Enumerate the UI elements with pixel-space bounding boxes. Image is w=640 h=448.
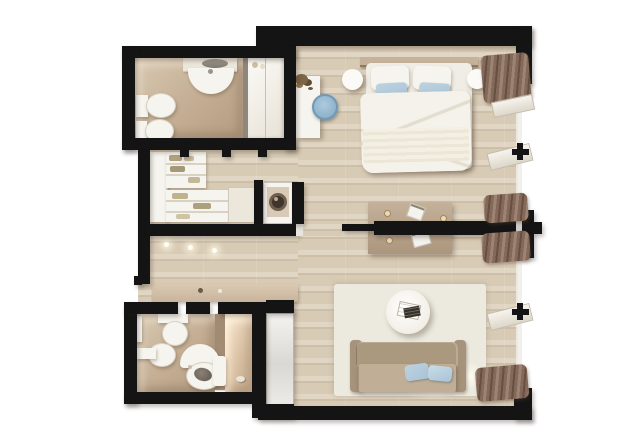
tea-light-3: [386, 237, 393, 244]
shelf-line: [166, 200, 228, 202]
folded-clothes-1: [172, 193, 188, 199]
bathroom1-shelf-item-2: [260, 64, 265, 69]
curtain-bunch-mid-upper: [483, 192, 529, 223]
washer-niche-left-wall: [254, 180, 263, 224]
desk-plant: [295, 74, 308, 85]
shelf-line: [166, 211, 228, 213]
wall-bottom-bathroom1: [122, 138, 296, 150]
folded-clothes-3: [176, 214, 190, 219]
wall-right-bathroom2: [252, 302, 266, 418]
wall-top-bathroom2-b: [186, 302, 210, 314]
entry-gap-floor: [138, 284, 150, 302]
partition-wall-thin-rail: [342, 224, 376, 231]
closet-wall-end-cap: [296, 224, 303, 236]
wall-left-bathroom2: [124, 302, 137, 404]
door-stub-2: [222, 150, 231, 157]
desk-chair-blue: [312, 94, 338, 120]
wall-top-bathroom1: [122, 46, 296, 58]
curtain-bunch-mid-lower: [481, 230, 531, 263]
glass-door-cap-top: [266, 300, 294, 313]
bathroom1-wardrobe-door-split: [265, 58, 266, 138]
bathroom1-toilet-bowl: [146, 93, 176, 118]
door-stub-1: [180, 150, 189, 157]
wall-bottom-closet: [146, 224, 298, 236]
hanging-clothes-3: [170, 166, 185, 172]
floor-plan-stage: [0, 0, 640, 448]
wall-top-main: [256, 26, 532, 46]
doorway-floor-strip: [303, 224, 342, 236]
bathroom2-towel-shelf: [136, 348, 156, 359]
tea-light-1: [384, 210, 391, 217]
ceiling-spotlight-2: [188, 245, 193, 250]
washer-door: [269, 193, 287, 211]
shelf-line: [166, 163, 206, 165]
washer-niche-right-wall: [292, 182, 304, 224]
window-mullion-cross-upper-v: [517, 143, 523, 160]
sofa-back-cushions: [356, 342, 458, 366]
wall-bottom-living: [258, 406, 532, 420]
bathroom2-bottle: [188, 365, 192, 369]
bathroom2-toilet-bowl: [162, 321, 188, 346]
bed-blanket-band: [363, 127, 470, 164]
console-item-dark: [198, 288, 203, 293]
sofa-pillow-blue-2: [427, 365, 452, 382]
curtain-bunch-bottom: [475, 364, 530, 402]
hanging-clothes-4: [188, 177, 200, 183]
door-stub-3: [258, 150, 267, 157]
bathroom2-sliding-glass-door: [266, 313, 294, 406]
bathroom1-shelf-item: [252, 62, 258, 68]
wall-bottom-bathroom2: [124, 392, 260, 404]
console-item-light: [218, 289, 222, 293]
ceiling-spotlight-1: [164, 242, 169, 247]
sofa-pillow-blue-1: [404, 362, 430, 381]
wall-top-bathroom2-a: [124, 302, 178, 314]
shelf-line: [166, 174, 206, 176]
bathroom1-counter-sink-inset: [202, 59, 228, 68]
wall-left-bathroom1: [122, 46, 135, 150]
window-mullion-cross-lower-v: [517, 303, 523, 320]
ceiling-spotlight-3: [212, 248, 217, 253]
bathroom1-wardrobe-cabinet: [248, 58, 284, 138]
folded-clothes-2: [193, 203, 211, 209]
entry-door-jamb-tick: [134, 276, 142, 285]
bathroom1-faucet: [208, 69, 213, 74]
bedside-lamp-left: [342, 69, 363, 90]
closet-drawer-counter: [228, 188, 257, 222]
shower-drain-item: [236, 376, 245, 382]
washer-door-highlight: [274, 197, 278, 201]
wall-right-bathroom1: [284, 46, 296, 150]
shower-towel-rail: [213, 356, 226, 386]
partition-end-nub: [532, 222, 542, 234]
